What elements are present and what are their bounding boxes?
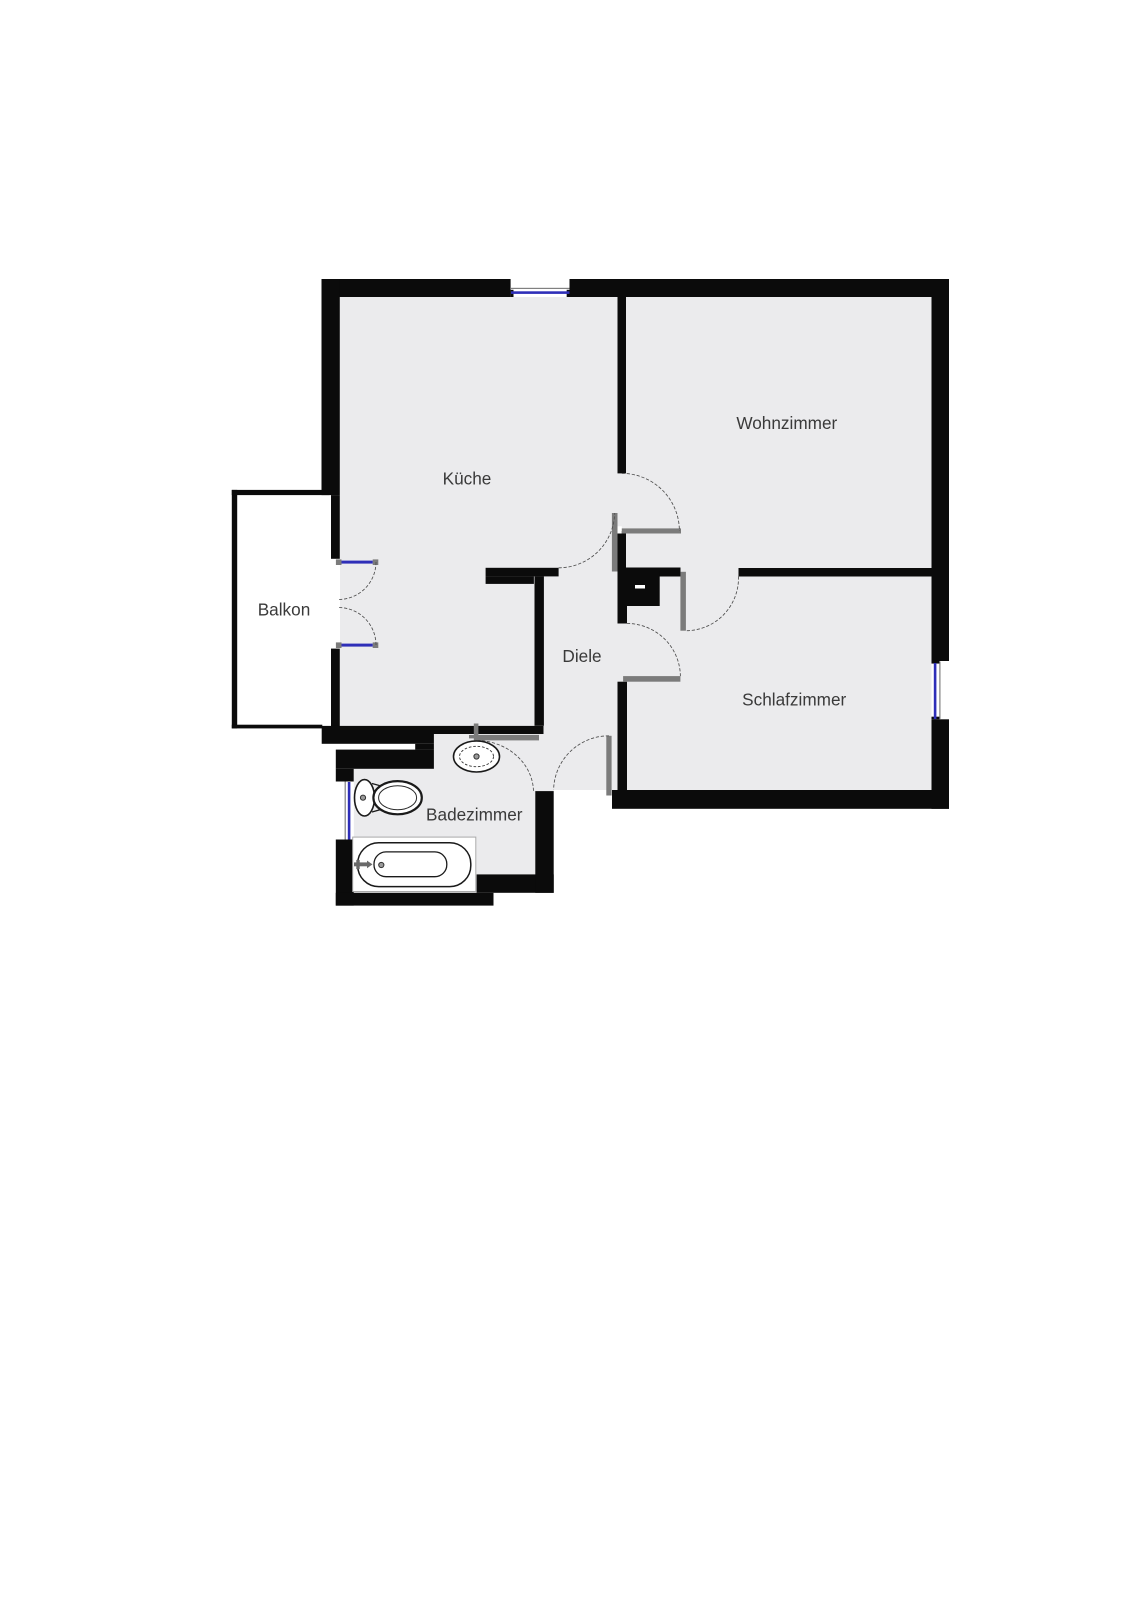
svg-text:Schlafzimmer: Schlafzimmer — [742, 690, 846, 710]
svg-text:Wohnzimmer: Wohnzimmer — [736, 413, 837, 433]
svg-text:Badezimmer: Badezimmer — [426, 804, 523, 824]
svg-text:Diele: Diele — [562, 646, 601, 666]
svg-text:Küche: Küche — [443, 469, 492, 489]
svg-text:Balkon: Balkon — [258, 600, 311, 620]
